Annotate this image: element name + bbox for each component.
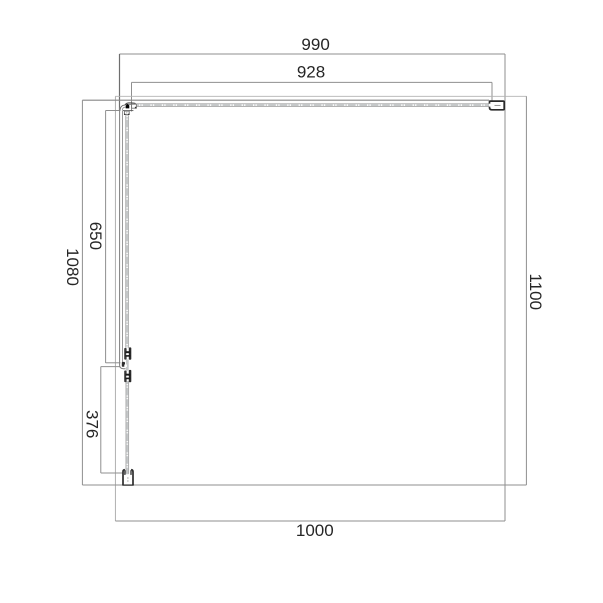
svg-text:1000: 1000 (296, 521, 334, 540)
svg-text:376: 376 (82, 410, 101, 438)
svg-text:1100: 1100 (526, 274, 545, 311)
svg-text:928: 928 (297, 63, 325, 82)
svg-text:990: 990 (301, 35, 329, 54)
svg-text:650: 650 (86, 222, 105, 250)
svg-text:1080: 1080 (63, 248, 82, 286)
